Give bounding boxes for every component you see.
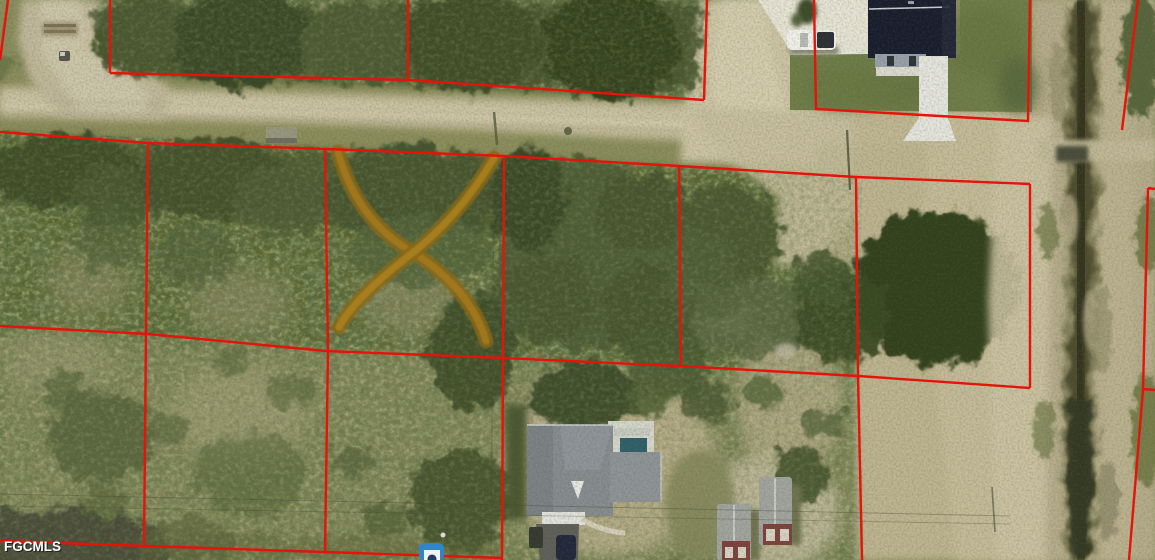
svg-text:FGCMLS: FGCMLS [4, 539, 61, 554]
